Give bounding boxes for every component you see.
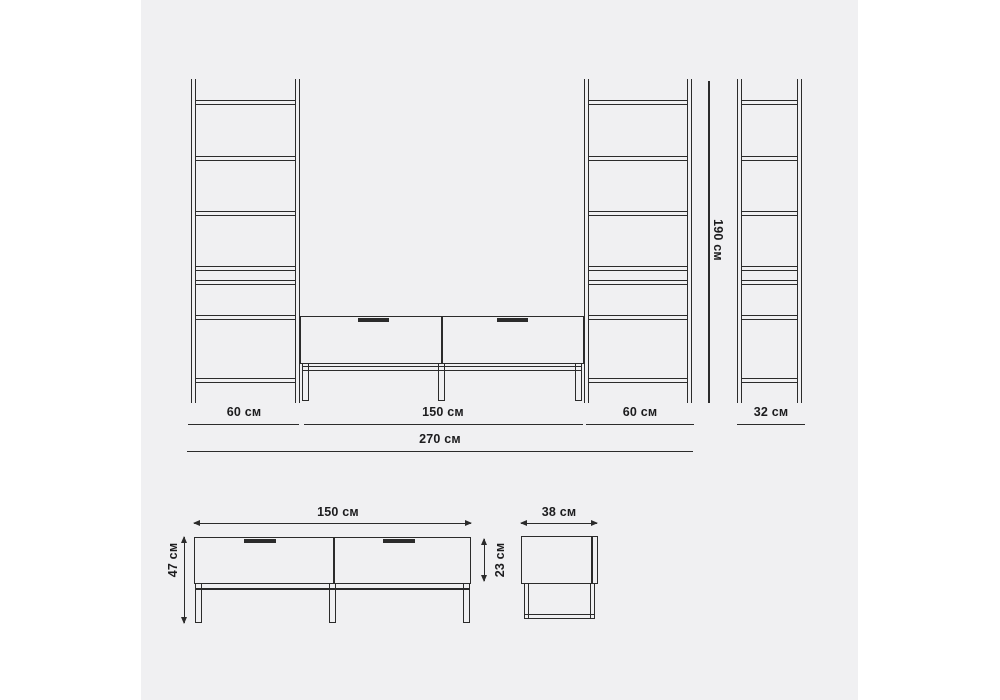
dim-label-side-shelf-depth: 32 см [754, 405, 789, 419]
shelf-rail [588, 315, 688, 320]
drawer-divider [333, 537, 335, 584]
tv-stand-front-view [194, 537, 471, 623]
dim-label-tv-stand-width: 150 см [422, 405, 464, 419]
dim-label-front-height: 47 см [165, 533, 181, 587]
shelf-rail [588, 100, 688, 105]
dim-label-shelf-height: 190 см [710, 213, 726, 267]
dim-arrow-front-height [184, 537, 185, 623]
drawer-handle-icon [497, 318, 528, 322]
drawer-handle-icon [358, 318, 389, 322]
page: { "colors": { "page_bg": "#ffffff", "can… [0, 0, 1000, 700]
shelf-rail [195, 315, 296, 320]
shelf-unit-right [584, 79, 692, 403]
shelf-rail [195, 266, 296, 271]
back-panel-line [591, 536, 593, 584]
shelf-unit-side-profile [737, 79, 802, 403]
shelf-rail [195, 100, 296, 105]
dim-arrow-drawer-height [484, 539, 485, 581]
shelf-rail [588, 280, 688, 285]
dim-label-front-width: 150 см [317, 505, 359, 519]
tv-stand-leg [195, 584, 202, 623]
shelf-post-icon [797, 79, 802, 403]
tv-stand-leg [329, 584, 336, 623]
dim-arrow-side-depth [521, 523, 597, 524]
shelf-post-icon [191, 79, 196, 403]
dim-label-right-shelf-width: 60 см [623, 405, 658, 419]
tv-stand-leg [575, 364, 582, 401]
shelf-rail [741, 266, 798, 271]
shelf-rail [588, 211, 688, 216]
shelf-unit-left [191, 79, 300, 403]
drawing-canvas: 190 см 60 см 150 см 60 см 32 см 270 см 1… [141, 0, 858, 700]
tv-stand-elevation [300, 316, 584, 401]
shelf-rail [588, 378, 688, 383]
dim-line-left-shelf [188, 424, 299, 425]
drawer-divider [441, 316, 443, 364]
shelf-rail [741, 211, 798, 216]
dim-line-total-width [187, 451, 693, 452]
dim-label-total-width: 270 см [419, 432, 461, 446]
shelf-rail [588, 156, 688, 161]
shelf-rail [588, 266, 688, 271]
shelf-rail [195, 211, 296, 216]
dim-label-left-shelf-width: 60 см [227, 405, 262, 419]
tv-stand-side-view [521, 536, 598, 619]
shelf-rail [741, 378, 798, 383]
shelf-rail [741, 156, 798, 161]
leg-rail [524, 614, 595, 619]
dim-label-side-depth: 38 см [542, 505, 577, 519]
shelf-post-icon [584, 79, 589, 403]
dim-line-side-shelf [737, 424, 805, 425]
dim-line-right-shelf [586, 424, 694, 425]
shelf-rail [741, 100, 798, 105]
dim-label-drawer-height: 23 см [492, 533, 508, 587]
dim-arrow-front-width [194, 523, 471, 524]
drawer-handle-icon [244, 539, 276, 543]
shelf-rail [195, 280, 296, 285]
tv-stand-leg [302, 364, 309, 401]
tv-stand-leg [463, 584, 470, 623]
dim-line-tv-stand [304, 424, 583, 425]
shelf-post-icon [687, 79, 692, 403]
tv-stand-leg [438, 364, 445, 401]
shelf-rail [741, 280, 798, 285]
shelf-rail [195, 378, 296, 383]
shelf-rail [195, 156, 296, 161]
tv-stand-body [521, 536, 598, 584]
shelf-post-icon [737, 79, 742, 403]
shelf-rail [741, 315, 798, 320]
drawer-handle-icon [383, 539, 415, 543]
